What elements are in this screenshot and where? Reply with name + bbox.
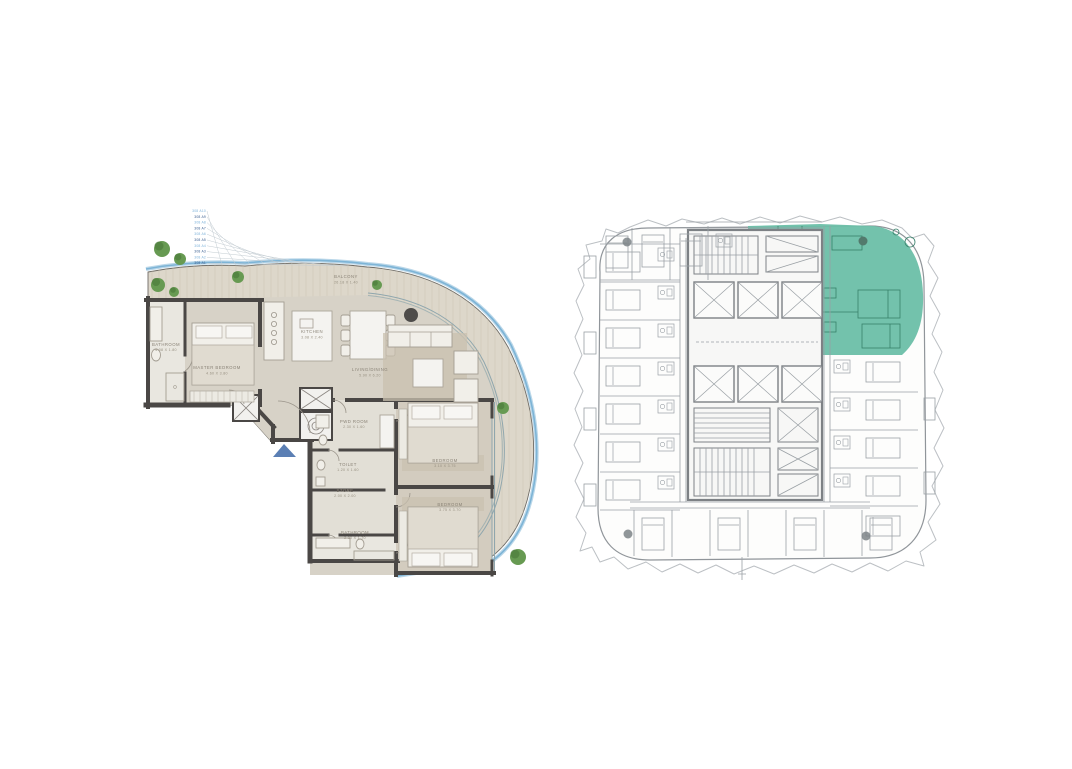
apartment-floor-plan: 308 A10 308 A9 308 A8 308 A7 308 A6 308 … [140,205,550,580]
svg-text:PWD ROOM: PWD ROOM [340,419,368,424]
svg-text:308 A8: 308 A8 [194,221,206,225]
svg-text:STORE: STORE [337,488,354,493]
svg-text:KITCHEN: KITCHEN [301,329,323,334]
svg-text:BALCONY: BALCONY [334,274,358,279]
brochure-page: 308 A10 308 A9 308 A8 308 A7 308 A6 308 … [0,0,1072,769]
svg-text:3.10 X 3.75: 3.10 X 3.75 [434,464,456,468]
entry-arrow-icon [273,444,296,457]
svg-text:5.90 X 6.20: 5.90 X 6.20 [359,374,381,378]
svg-text:308 A2: 308 A2 [194,255,206,259]
svg-text:308 A3: 308 A3 [194,250,206,254]
svg-text:308 A4: 308 A4 [194,244,206,248]
unit-code-leaders [207,211,348,266]
svg-text:TOILET: TOILET [339,462,357,467]
svg-text:308 A10: 308 A10 [192,209,206,213]
svg-text:308 A6: 308 A6 [194,232,206,236]
svg-text:BATHROOM: BATHROOM [152,342,180,347]
building-key-plan [570,200,950,585]
svg-text:308 A1: 308 A1 [194,261,206,265]
svg-text:1.20 X 1.60: 1.20 X 1.60 [337,468,359,472]
svg-text:3.75 X 3.70: 3.75 X 3.70 [439,508,461,512]
svg-text:26.18 X 1.40: 26.18 X 1.40 [334,281,358,285]
svg-text:LIVING/DINING: LIVING/DINING [352,367,388,372]
svg-text:BATHROOM: BATHROOM [341,530,369,535]
svg-text:308 A5: 308 A5 [194,238,206,242]
svg-text:308 A7: 308 A7 [194,226,206,230]
svg-text:308 A9: 308 A9 [194,215,206,219]
svg-text:2.30 X 1.60: 2.30 X 1.60 [343,425,365,429]
unit-code-list: 308 A10 308 A9 308 A8 308 A7 308 A6 308 … [192,209,206,265]
svg-text:MASTER BEDROOM: MASTER BEDROOM [193,365,241,370]
svg-text:BEDROOM: BEDROOM [432,458,457,463]
svg-text:4.08 X 1.80: 4.08 X 1.80 [155,348,177,352]
svg-text:2.30 X 1.70: 2.30 X 1.70 [344,536,366,540]
svg-text:4.60 X 3.80: 4.60 X 3.80 [206,372,228,376]
svg-text:BEDROOM: BEDROOM [437,502,462,507]
svg-text:3.08 X 2.40: 3.08 X 2.40 [301,336,323,340]
svg-text:2.00 X 2.00: 2.00 X 2.00 [334,494,356,498]
